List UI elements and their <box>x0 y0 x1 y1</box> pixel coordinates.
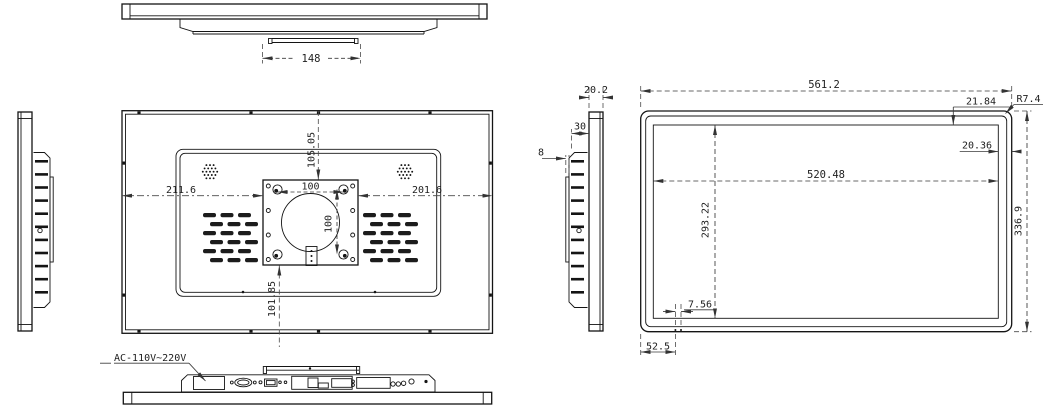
dim-back-bottom-offset: 101.85 <box>267 266 279 348</box>
dim-back-left-offset-label: 211.6 <box>166 185 196 196</box>
screw-hole <box>577 228 581 232</box>
dim-bracket-thickness-label: 8 <box>538 148 544 159</box>
dim-vesa-width: 100 <box>278 182 344 193</box>
heatsink-outline <box>569 153 588 308</box>
screw-dot <box>374 291 377 294</box>
dim-right-bezel-label: 20.36 <box>962 141 992 152</box>
dim-vesa-height: 100 <box>324 190 338 255</box>
right-side-view: 20.2 30 8 <box>538 85 612 331</box>
bottom-hole <box>680 329 682 331</box>
speaker-grille-left <box>202 164 218 179</box>
usb-port <box>318 383 328 388</box>
power-callout: AC-110V~220V <box>100 353 206 381</box>
dim-back-right-offset: 201.6 <box>358 185 493 196</box>
dim-hole-pitch: 7.56 <box>663 300 716 329</box>
stand-housing <box>180 19 437 32</box>
dim-hole-pitch-label: 7.56 <box>688 300 712 311</box>
dim-bottom-left-offset: 52.5 <box>641 334 676 357</box>
dim-panel-thickness-label: 20.2 <box>584 85 608 96</box>
audio-jacks <box>391 379 414 386</box>
left-side-view <box>18 112 53 331</box>
dim-back-top-offset: 105.05 <box>307 111 319 180</box>
vent-slots-right <box>363 213 418 262</box>
screw-dot <box>242 291 245 294</box>
dim-top-bezel-label: 21.84 <box>966 97 996 108</box>
mount-bracket <box>566 177 569 262</box>
hdmi-connector <box>265 379 278 386</box>
screw-dot <box>424 380 427 383</box>
dim-panel-thickness: 20.2 <box>580 85 612 108</box>
speaker-grille-right <box>397 164 413 179</box>
dim-display-width-label: 520.48 <box>807 169 845 181</box>
ac-power-inlet <box>194 377 225 390</box>
dim-back-right-offset-label: 201.6 <box>412 185 442 196</box>
mount-hook-left <box>269 39 273 44</box>
dim-overall-height-label: 336.9 <box>1014 206 1025 236</box>
technical-drawing-page: 148 <box>0 0 1048 414</box>
dim-back-left-offset: 211.6 <box>122 185 263 196</box>
heatsink-fins <box>571 160 584 294</box>
dim-corner-radius-label: R7.4 <box>1016 94 1040 105</box>
dim-overall-height: 336.9 <box>1014 111 1032 332</box>
port-slot <box>332 379 352 388</box>
mount-hook-right <box>355 39 359 44</box>
mount-bracket <box>50 177 53 262</box>
dim-display-height-label: 293.22 <box>701 202 712 238</box>
power-label: AC-110V~220V <box>114 353 186 364</box>
dim-overall-width-label: 561.2 <box>808 79 840 91</box>
dim-display-width: 520.48 <box>653 169 998 181</box>
heatsink-fins <box>35 160 48 294</box>
dim-stand-width-label: 148 <box>302 53 321 65</box>
dim-corner-radius: R7.4 <box>1006 94 1044 114</box>
dim-overall-width: 561.2 <box>641 79 1012 107</box>
monitor-dimension-drawing: 148 <box>0 0 1048 414</box>
usb-port <box>308 378 318 388</box>
dim-bottom-left-offset-label: 52.5 <box>646 342 670 353</box>
dim-back-top-offset-label: 105.05 <box>307 132 318 168</box>
dim-right-bezel: 20.36 <box>960 141 1019 152</box>
vesa-mount-plate <box>263 180 358 266</box>
top-view: 148 <box>122 4 487 65</box>
bottom-view: AC-110V~220V <box>100 353 492 404</box>
vent-slots-left <box>203 213 258 262</box>
dim-vesa-width-label: 100 <box>301 182 319 193</box>
dim-body-depth-label: 30 <box>574 122 586 133</box>
screw-hole <box>38 228 42 232</box>
back-view: 105.05 211.6 201.6 100 100 101.85 <box>122 111 493 347</box>
bottom-hole <box>674 329 676 331</box>
dim-bracket-thickness: 8 <box>538 148 569 174</box>
dim-vesa-height-label: 100 <box>324 215 335 233</box>
dim-stand-width: 148 <box>263 44 361 65</box>
io-recess-right <box>357 378 391 389</box>
dim-display-height: 293.22 <box>701 125 716 318</box>
vga-connector <box>230 378 256 387</box>
front-view: 561.2 21.84 R7.4 20.36 520.48 293.22 <box>641 79 1043 357</box>
dim-back-bottom-offset-label: 101.85 <box>267 281 278 317</box>
dim-body-depth: 30 <box>572 122 590 149</box>
